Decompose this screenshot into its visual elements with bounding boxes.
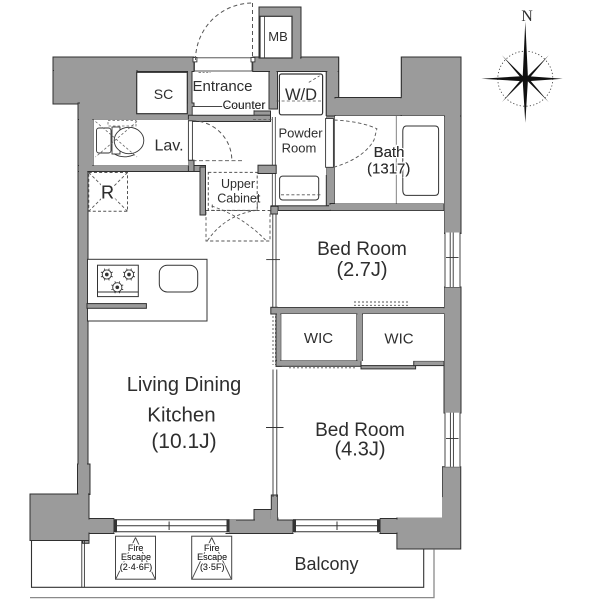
svg-text:Powder: Powder [278, 126, 323, 141]
svg-text:Escape: Escape [197, 552, 227, 562]
svg-text:N: N [521, 8, 533, 25]
svg-text:Lav.: Lav. [154, 138, 183, 155]
svg-text:(2.7J): (2.7J) [336, 259, 387, 281]
svg-text:SC: SC [154, 86, 173, 102]
svg-text:Kitchen: Kitchen [147, 404, 215, 427]
svg-text:(1317): (1317) [367, 161, 410, 178]
svg-text:Escape: Escape [121, 552, 151, 562]
svg-text:Balcony: Balcony [294, 554, 358, 574]
svg-text:R: R [101, 183, 114, 203]
svg-text:Upper: Upper [221, 177, 255, 191]
svg-text:W/D: W/D [285, 86, 317, 104]
svg-text:WIC: WIC [384, 331, 413, 348]
svg-text:Bed Room: Bed Room [317, 239, 407, 260]
svg-text:Room: Room [282, 140, 317, 155]
svg-text:Counter: Counter [223, 98, 266, 112]
svg-text:WIC: WIC [304, 330, 333, 347]
svg-text:Entrance: Entrance [192, 78, 252, 95]
svg-text:(4.3J): (4.3J) [334, 439, 385, 461]
svg-text:MB: MB [268, 29, 288, 44]
svg-text:(10.1J): (10.1J) [151, 430, 216, 453]
svg-text:Bath: Bath [374, 144, 405, 161]
svg-text:Living Dining: Living Dining [127, 374, 242, 396]
svg-text:Cabinet: Cabinet [217, 192, 261, 206]
svg-text:(3·5F): (3·5F) [200, 562, 225, 572]
svg-text:(2·4·6F): (2·4·6F) [120, 562, 153, 572]
